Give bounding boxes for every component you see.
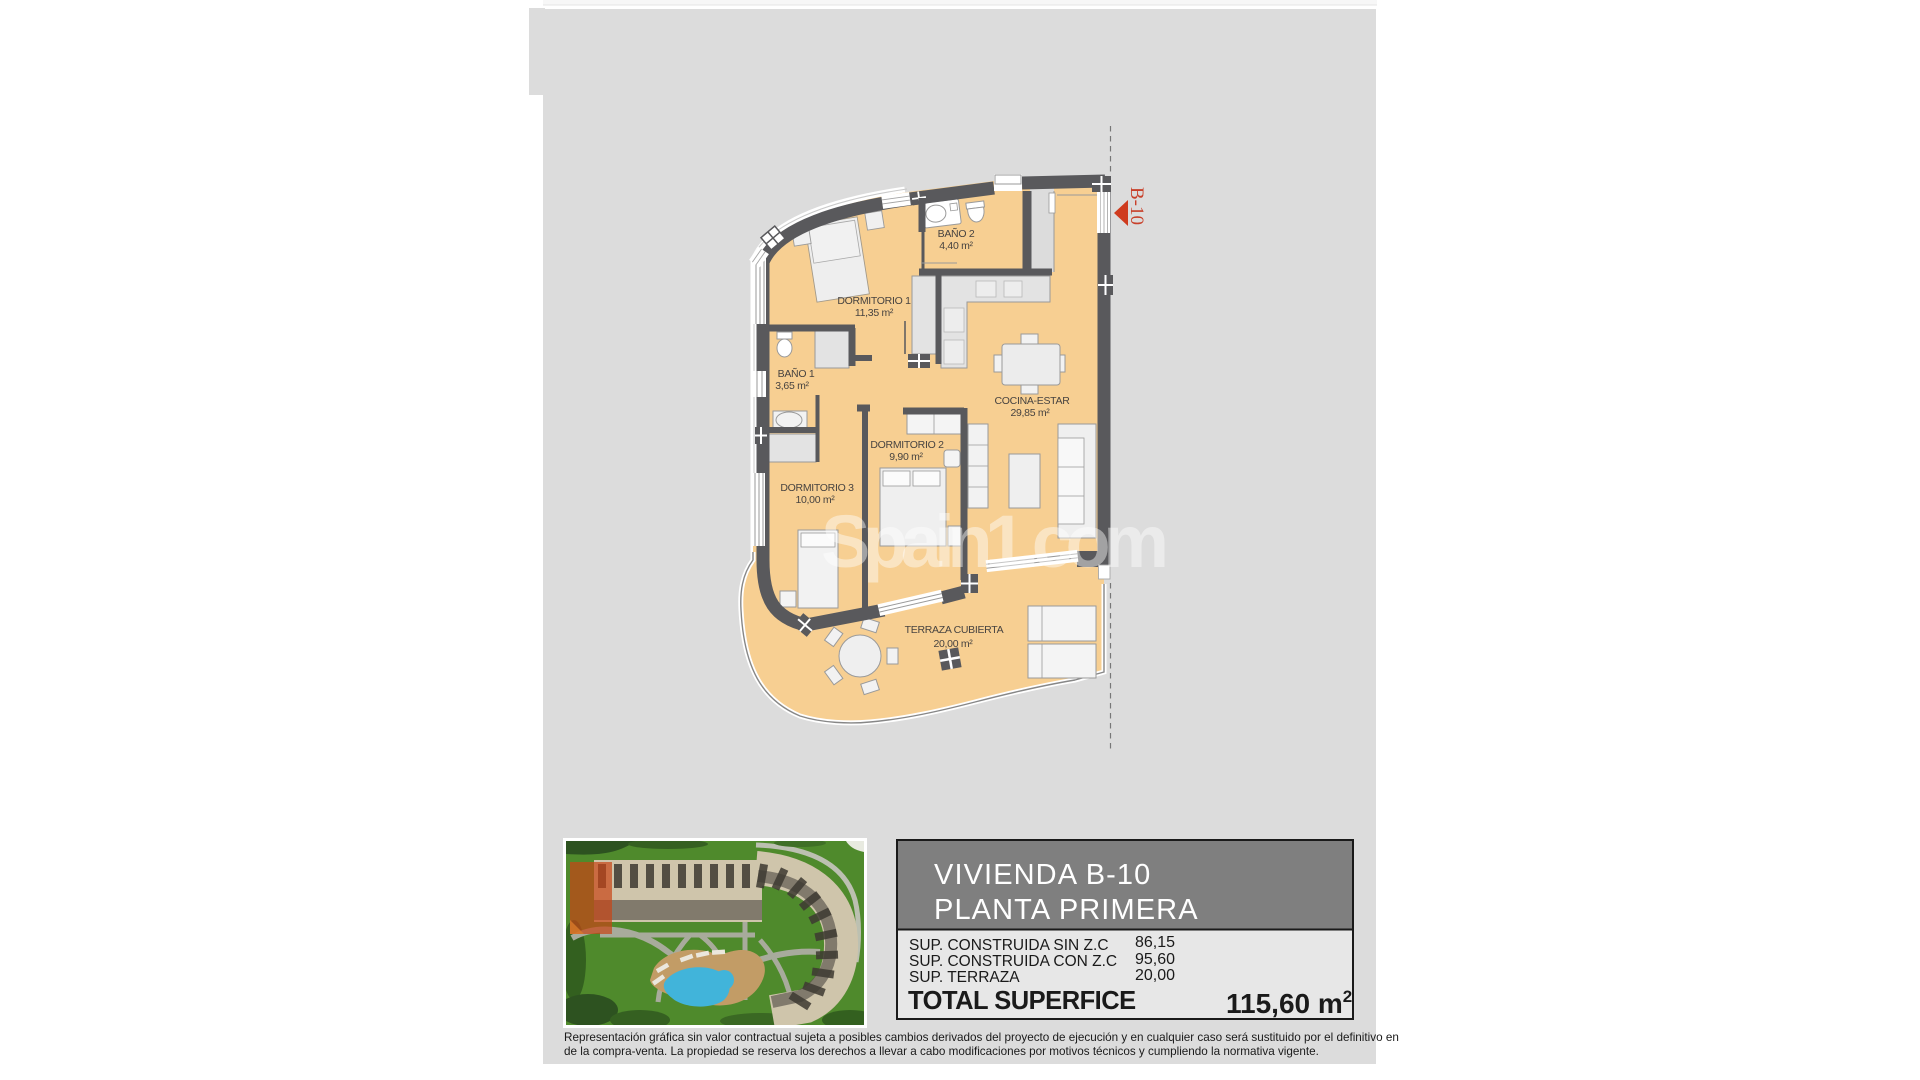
svg-text:COCINA-ESTAR: COCINA-ESTAR <box>995 395 1071 407</box>
svg-text:20,00: 20,00 <box>1135 967 1175 984</box>
svg-text:3,65 m²: 3,65 m² <box>775 380 809 392</box>
svg-text:TERRAZA CUBIERTA: TERRAZA CUBIERTA <box>905 624 1004 636</box>
svg-text:de la compra-venta. La propied: de la compra-venta. La propiedad se rese… <box>564 1045 1319 1058</box>
svg-text:11,35 m²: 11,35 m² <box>855 307 894 319</box>
svg-text:29,85 m²: 29,85 m² <box>1010 407 1050 419</box>
svg-text:DORMITORIO 2: DORMITORIO 2 <box>870 439 944 451</box>
svg-text:B-10: B-10 <box>1126 187 1147 225</box>
svg-text:Representación gráfica sin val: Representación gráfica sin valor contrac… <box>564 1031 1399 1044</box>
svg-text:4,40 m²: 4,40 m² <box>939 240 973 252</box>
svg-text:86,15: 86,15 <box>1135 934 1175 951</box>
svg-text:DORMITORIO 3: DORMITORIO 3 <box>780 482 854 494</box>
svg-text:95,60: 95,60 <box>1135 951 1175 968</box>
svg-text:SUP. TERRAZA: SUP. TERRAZA <box>909 969 1020 986</box>
svg-text:115,60 m2: 115,60 m2 <box>1226 987 1352 1019</box>
svg-text:BAÑO 2: BAÑO 2 <box>938 227 975 240</box>
svg-text:20,00 m²: 20,00 m² <box>933 638 973 650</box>
svg-text:SUP. CONSTRUIDA SIN Z.C: SUP. CONSTRUIDA SIN Z.C <box>909 937 1109 954</box>
svg-text:DORMITORIO 1: DORMITORIO 1 <box>837 295 911 307</box>
svg-text:Spain1.com: Spain1.com <box>821 500 1169 583</box>
svg-text:TOTAL SUPERFICE: TOTAL SUPERFICE <box>908 987 1136 1015</box>
svg-text:SUP. CONSTRUIDA CON Z.C: SUP. CONSTRUIDA CON Z.C <box>909 953 1117 970</box>
svg-text:9,90 m²: 9,90 m² <box>889 451 923 463</box>
svg-text:BAÑO 1: BAÑO 1 <box>778 367 815 380</box>
svg-text:PLANTA PRIMERA: PLANTA PRIMERA <box>934 894 1199 926</box>
svg-text:VIVIENDA B-10: VIVIENDA B-10 <box>934 859 1151 891</box>
